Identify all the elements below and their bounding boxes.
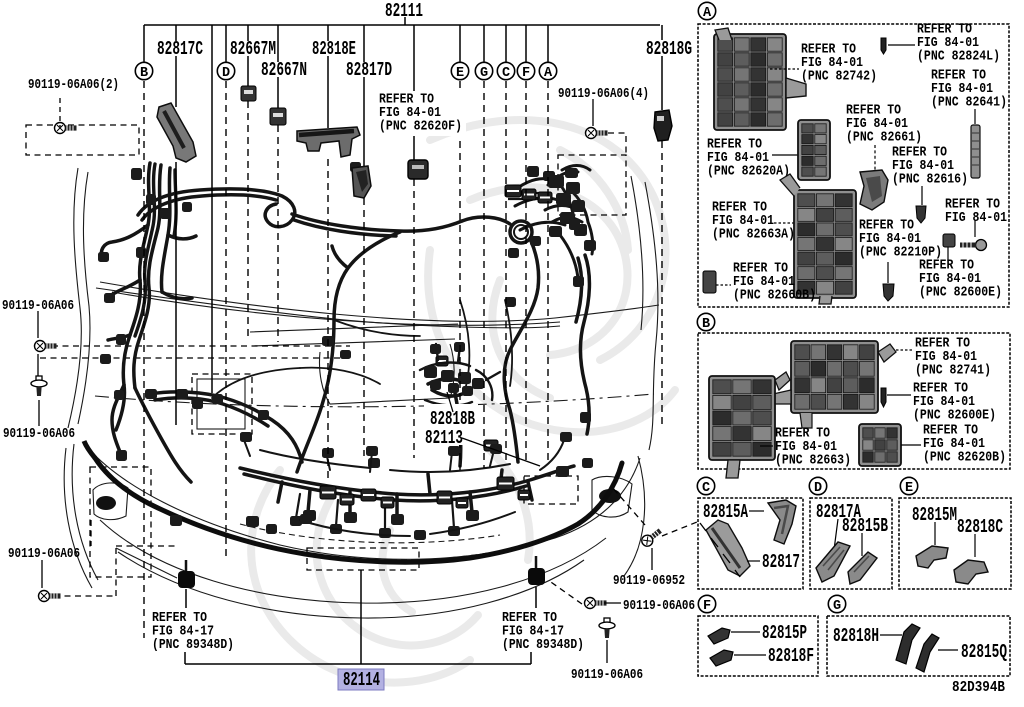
svg-text:(PNC 82741): (PNC 82741): [915, 362, 991, 378]
svg-text:90119-06A06: 90119-06A06: [3, 426, 75, 442]
svg-text:82114: 82114: [343, 669, 380, 691]
svg-text:(PNC 82620B): (PNC 82620B): [923, 449, 1006, 465]
svg-text:D: D: [814, 481, 822, 496]
svg-text:90119-06A06: 90119-06A06: [8, 546, 80, 562]
svg-text:82818E: 82818E: [312, 38, 356, 60]
svg-text:(PNC 82620F): (PNC 82620F): [379, 118, 462, 134]
svg-text:82817: 82817: [762, 551, 800, 573]
svg-text:(PNC 82641): (PNC 82641): [931, 94, 1007, 110]
svg-text:90119-06A06(2): 90119-06A06(2): [28, 77, 119, 93]
svg-text:A: A: [703, 6, 712, 21]
svg-text:C: C: [702, 481, 710, 496]
svg-text:90119-06A06: 90119-06A06: [571, 667, 643, 683]
svg-text:B: B: [702, 317, 710, 332]
svg-text:82667N: 82667N: [261, 59, 307, 81]
svg-text:B: B: [140, 66, 148, 81]
svg-text:(PNC 82663A): (PNC 82663A): [712, 226, 795, 242]
svg-text:(PNC 82824L): (PNC 82824L): [917, 48, 1000, 64]
svg-text:(PNC 82600E): (PNC 82600E): [919, 284, 1002, 300]
svg-text:82817D: 82817D: [346, 59, 392, 81]
svg-text:E: E: [905, 481, 913, 496]
svg-text:(PNC 82616): (PNC 82616): [892, 171, 968, 187]
svg-text:(PNC 82663): (PNC 82663): [775, 452, 851, 468]
svg-text:82817C: 82817C: [157, 38, 203, 60]
svg-text:G: G: [480, 66, 488, 81]
svg-text:82815P: 82815P: [762, 622, 807, 644]
svg-text:82818C: 82818C: [957, 516, 1003, 538]
svg-text:G: G: [833, 599, 841, 614]
svg-text:F: F: [703, 599, 711, 614]
svg-text:A: A: [544, 66, 553, 81]
svg-text:D: D: [222, 66, 230, 81]
svg-text:90119-06952: 90119-06952: [613, 573, 685, 589]
svg-text:E: E: [456, 66, 464, 81]
svg-text:82818G: 82818G: [646, 38, 692, 60]
svg-text:(PNC 82742): (PNC 82742): [801, 68, 877, 84]
svg-text:(PNC 89348D): (PNC 89348D): [152, 637, 234, 653]
svg-text:90119-06A06: 90119-06A06: [623, 598, 695, 614]
svg-text:82667M: 82667M: [230, 38, 276, 60]
svg-text:FIG 84-01: FIG 84-01: [945, 210, 1007, 226]
svg-text:90119-06A06(4): 90119-06A06(4): [558, 86, 649, 102]
svg-text:C: C: [502, 66, 510, 81]
svg-text:82818H: 82818H: [833, 625, 879, 647]
svg-text:82113: 82113: [425, 427, 463, 449]
svg-text:F: F: [522, 66, 530, 81]
svg-text:82815B: 82815B: [842, 515, 888, 537]
svg-text:82815A: 82815A: [703, 501, 748, 523]
svg-text:(PNC 82620A): (PNC 82620A): [707, 163, 790, 179]
svg-text:82111: 82111: [385, 0, 423, 22]
svg-text:82815Q: 82815Q: [961, 641, 1007, 663]
svg-text:82D394B: 82D394B: [952, 679, 1005, 696]
svg-text:(PNC 89348D): (PNC 89348D): [502, 637, 584, 653]
svg-text:82818F: 82818F: [768, 645, 814, 667]
svg-text:(PNC 82600E): (PNC 82600E): [913, 407, 996, 423]
svg-text:(PNC 82661): (PNC 82661): [846, 129, 922, 145]
svg-text:(PNC 82660B): (PNC 82660B): [733, 287, 816, 303]
